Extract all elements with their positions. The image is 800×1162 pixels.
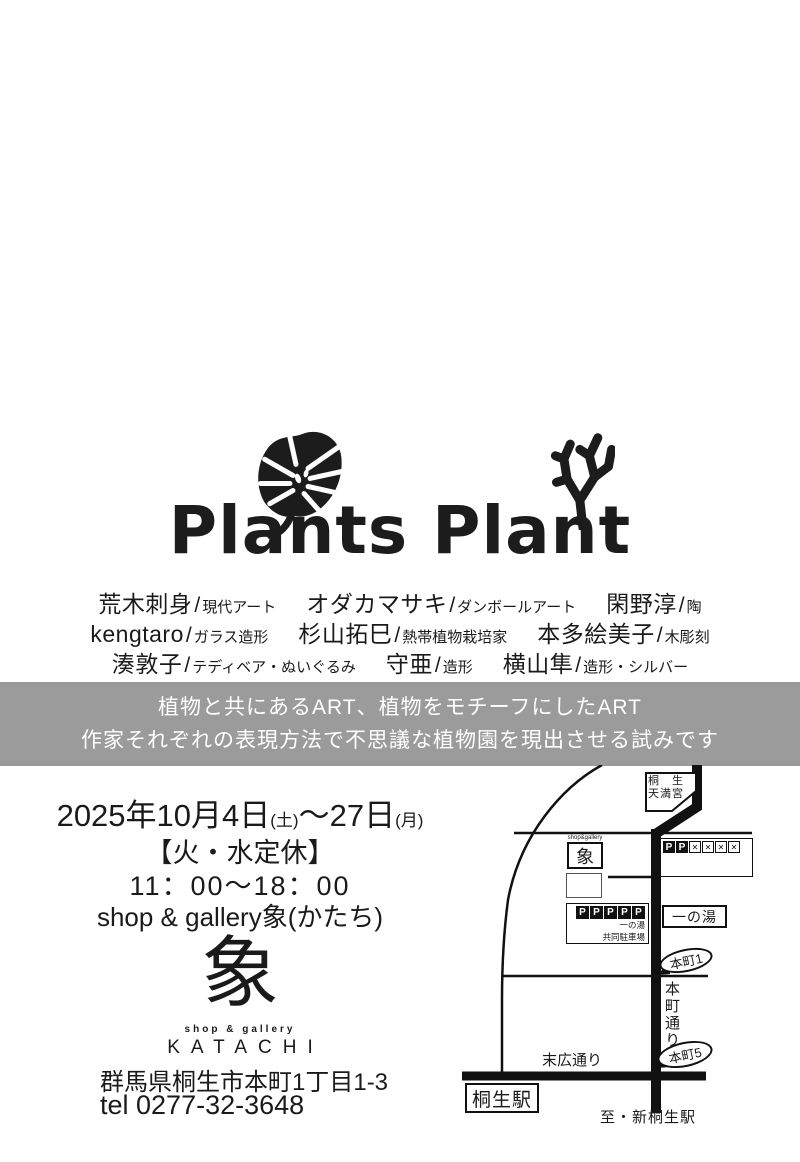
exhibition-dates: 2025年10月4日(土)～27日(月) (15, 790, 465, 835)
parking-p-row: P P P P P (570, 906, 645, 919)
artist-genre: 陶 (687, 596, 702, 617)
parking-x-icon: ✕ (689, 841, 701, 853)
artist-genre: ダンボールアート (457, 596, 576, 617)
artist-name: 閑野淳 (606, 585, 677, 619)
gallery-tel: tel 0277-32-3648 (100, 1090, 304, 1121)
banner-line-2: 作家それぞれの表現方法で不思議な植物園を現出させる試みです (0, 724, 800, 757)
artist-genre: 造形 (443, 656, 473, 677)
parking-name-line1: 一の湯 (570, 920, 645, 931)
artist-entry: kengtaro/ガラス造形 (90, 621, 268, 648)
parking-p-icon: P (618, 906, 631, 919)
to-shinkiryu-label: 至・新桐生駅 (600, 1106, 696, 1127)
artist-entry: 閑野淳/陶 (606, 585, 701, 619)
parking-x-icon: ✕ (728, 841, 740, 853)
artist-row: kengtaro/ガラス造形 杉山拓巳/熱帯植物栽培家 本多絵美子/木彫刻 (0, 615, 800, 645)
tenmangu-line2: 天満宮 (648, 788, 695, 801)
artist-slash: / (575, 654, 581, 678)
artist-slash: / (184, 654, 190, 678)
kiryu-station-label: 桐生駅 (465, 1083, 539, 1113)
artist-name: kengtaro (90, 621, 184, 648)
parking-p-icon: P (663, 841, 675, 853)
date-weekday-mon: (月) (395, 811, 423, 830)
artist-name: 荒木刺身 (98, 585, 192, 619)
date-end: 27日 (330, 798, 395, 833)
artist-entry: 横山隼/造形・シルバー (503, 645, 688, 679)
artist-genre: 造形・シルバー (583, 656, 688, 677)
parking-x-icon: ✕ (702, 841, 714, 853)
parking-p-icon: P (576, 906, 589, 919)
artist-name: 湊敦子 (112, 645, 183, 679)
artist-list: 荒木刺身/現代アート オダカマサキ/ダンボールアート 閑野淳/陶 kengtar… (0, 585, 800, 675)
date-weekday-sat: (土) (270, 811, 298, 830)
artist-entry: オダカマサキ/ダンボールアート (306, 585, 576, 619)
katachi-kanji-logo: 象 (15, 932, 465, 1016)
suehiro-dori-label: 末広通り (542, 1049, 602, 1070)
artist-name: 本多絵美子 (537, 615, 655, 649)
parking-status-row: P P ✕ ✕ ✕ ✕ (663, 841, 750, 853)
artist-entry: 湊敦子/テディベア・ぬいぐるみ (112, 645, 356, 679)
katachi-logo-subtitle: shop & gallery (15, 1024, 465, 1035)
artist-entry: 荒木刺身/現代アート (98, 585, 276, 619)
parking-p-icon: P (590, 906, 603, 919)
katachi-logo-name: KATACHI (15, 1037, 465, 1059)
parking-name-line2: 共同駐車場 (570, 932, 645, 943)
artist-entry: 本多絵美子/木彫刻 (537, 615, 709, 649)
artist-name: 杉山拓巳 (298, 615, 392, 649)
artist-name: オダカマサキ (306, 585, 447, 619)
parking-p-icon: P (604, 906, 617, 919)
artist-genre: 木彫刻 (665, 626, 710, 647)
exhibition-title: Plants Plant (0, 492, 800, 569)
parking-status-box: P P ✕ ✕ ✕ ✕ (660, 838, 753, 877)
artist-slash: / (435, 654, 441, 678)
artist-row: 湊敦子/テディベア・ぬいぐるみ 守亜/造形 横山隼/造形・シルバー (0, 645, 800, 675)
intro-banner: 植物と共にあるART、植物をモチーフにしたART 作家それぞれの表現方法で不思議… (0, 682, 800, 766)
map-building-box (566, 873, 602, 898)
artist-name: 守亜 (386, 645, 433, 679)
artist-row: 荒木刺身/現代アート オダカマサキ/ダンボールアート 閑野淳/陶 (0, 585, 800, 615)
artist-genre: ガラス造形 (194, 626, 269, 647)
access-map: 桐 生 天満宮 shop&gallery 象 P P P P P 一の湯 共同駐… (460, 765, 800, 1135)
flyer-page: Plants Plant 荒木刺身/現代アート オダカマサキ/ダンボールアート … (0, 0, 800, 1162)
date-main: 2025年10月4日 (57, 798, 271, 833)
parking-p-icon: P (632, 906, 645, 919)
artist-genre: 熱帯植物栽培家 (402, 626, 507, 647)
katachi-map-marker: 象 (567, 842, 603, 869)
parking-lot-box: P P P P P 一の湯 共同駐車場 (566, 903, 649, 944)
artist-genre: テディベア・ぬいぐるみ (192, 656, 356, 677)
banner-line-1: 植物と共にあるART、植物をモチーフにしたART (0, 691, 800, 724)
parking-p-icon: P (676, 841, 688, 853)
map-shop-small-label: shop&gallery (564, 835, 606, 841)
tenmangu-line1: 桐 生 (648, 775, 695, 788)
artist-name: 横山隼 (503, 645, 574, 679)
artist-slash: / (194, 594, 200, 618)
tenmangu-label: 桐 生 天満宮 (648, 775, 695, 801)
artist-entry: 杉山拓巳/熱帯植物栽培家 (298, 615, 507, 649)
ichinoyu-label: 一の湯 (662, 905, 727, 928)
honcho-dori-label: 本町通り (661, 981, 682, 1049)
artist-genre: 現代アート (202, 596, 276, 617)
date-tilde: ～ (299, 798, 330, 833)
artist-entry: 守亜/造形 (386, 645, 473, 679)
map-roads-svg (460, 765, 800, 1135)
parking-x-icon: ✕ (715, 841, 727, 853)
